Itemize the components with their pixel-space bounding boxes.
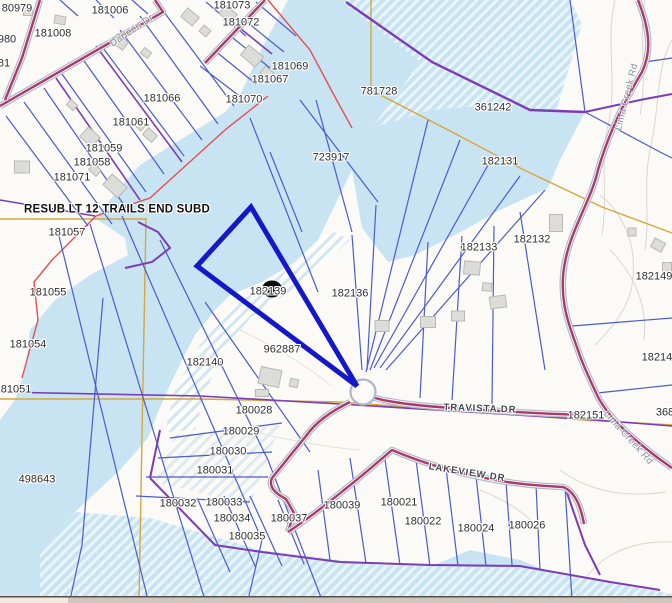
- parcel-label: 181061: [113, 118, 150, 129]
- parcel-label: 182139: [250, 287, 287, 298]
- parcel-label: 181006: [92, 6, 129, 17]
- parcel-label: 962887: [264, 345, 301, 356]
- parcel-label: 368: [656, 408, 672, 419]
- parcel-label: 182133: [461, 243, 498, 254]
- parcel-label: 181059: [86, 144, 123, 155]
- parcel-label: 180032: [160, 499, 197, 510]
- map-edge-strip: [0, 596, 672, 603]
- parcel-label: 180026: [509, 521, 546, 532]
- parcel-label: 180033: [206, 498, 243, 509]
- map-base-svg: [0, 0, 672, 603]
- parcel-label: 361242: [475, 103, 512, 114]
- parcel-label: 80979: [2, 4, 33, 15]
- parcel-label: 182149: [636, 272, 672, 283]
- parcel-label: 180021: [381, 498, 418, 509]
- parcel-label: 181073: [214, 1, 251, 12]
- parcel-label: 180030: [210, 447, 247, 458]
- parcel-label: 180031: [197, 466, 234, 477]
- parcel-label: 181072: [223, 18, 260, 29]
- parcel-label: 182131: [482, 157, 519, 168]
- parcel-label: 181069: [272, 62, 309, 73]
- parcel-label: 781728: [361, 87, 398, 98]
- parcel-label: 181058: [74, 158, 111, 169]
- parcel-label: 180028: [236, 406, 273, 417]
- parcel-label: 181071: [54, 173, 91, 184]
- parcel-label: 181055: [30, 288, 67, 299]
- parcel-label: 181008: [35, 29, 72, 40]
- parcel-label: 980: [0, 35, 16, 46]
- map-canvas[interactable]: 8097918100618107318107218100898081181069…: [0, 0, 672, 603]
- parcel-label: 180039: [324, 501, 361, 512]
- parcel-label: 180022: [405, 517, 442, 528]
- parcel-label: 180037: [271, 514, 308, 525]
- parcel-label: 182140: [187, 358, 224, 369]
- parcel-label: 723917: [313, 153, 350, 164]
- parcel-label: 181054: [10, 340, 47, 351]
- road-major-label: TRAVISTA DR: [443, 403, 516, 415]
- parcel-label: 180035: [229, 532, 266, 543]
- parcel-label: 180034: [214, 514, 251, 525]
- subdivision-label: RESUB LT 12 TRAILS END SUBD: [24, 204, 210, 216]
- parcel-label: 498643: [19, 475, 56, 486]
- parcel-label: 180029: [223, 427, 260, 438]
- parcel-label: 181057: [49, 228, 86, 239]
- parcel-label: 182151: [568, 411, 605, 422]
- parcel-label: 181070: [226, 95, 263, 106]
- parcel-label: 81: [0, 59, 10, 70]
- parcel-label: 182132: [514, 235, 551, 246]
- parcel-label: 182136: [332, 289, 369, 300]
- parcel-label: 181051: [0, 385, 31, 396]
- parcel-label: 181066: [144, 94, 181, 105]
- parcel-label: 180024: [458, 524, 495, 535]
- parcel-label: 182148: [642, 353, 672, 364]
- parcel-label: 181067: [252, 75, 289, 86]
